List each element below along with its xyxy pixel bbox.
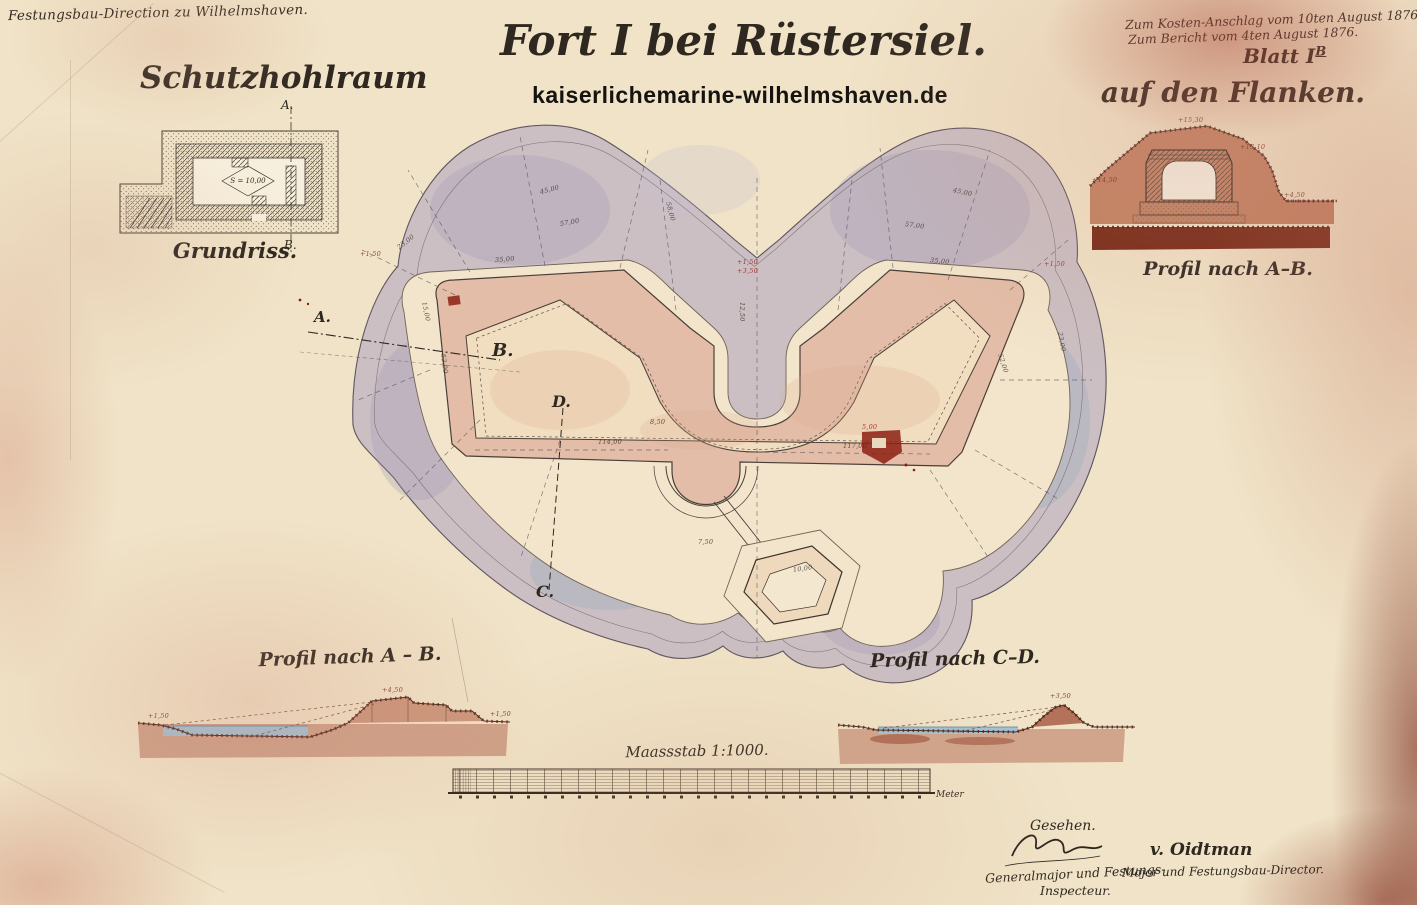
signature-seen: Gesehen. [1030,818,1096,834]
elevation-mark: 117,00 [843,442,867,450]
profile-cd-drawing [838,705,1135,764]
signature-left-role-2: Inspecteur. [1040,883,1111,898]
scale-caption: Maassstab 1:1000. [592,740,802,762]
flank-profile-drawing [1090,126,1340,250]
sheet-number-suffix: B [1315,44,1326,59]
drawing-layer [0,0,1417,905]
elevation-mark: 35,00 [495,255,515,264]
elevation-mark: 8,50 [650,418,665,426]
elevation-mark: 12,50 [738,302,746,322]
detail-marker-a: A. [281,98,293,112]
elevation-mark: +13,10 [1240,143,1265,151]
rampart-mound [348,697,484,723]
signature-stroke [1005,835,1102,866]
flank-profile-caption: Profil nach A–B. [1108,258,1348,280]
elevation-mark: +4,50 [1284,191,1305,199]
elevation-mark: +14,50 [1092,176,1117,184]
detail-plan-caption: Grundriss. [150,238,320,263]
profile-ab-drawing [138,697,510,758]
flank-profile-title: auf den Flanken. [1098,76,1368,109]
elevation-mark: +3,50 [1050,692,1071,700]
watermark-text: kaiserlichemarine-wilhelmshaven.de [500,82,980,109]
plan-marker-c: C. [536,582,554,601]
bunker-foundation [1140,202,1238,215]
elevation-mark: +1,50 [148,712,169,720]
detail-plan-title: Schutzhohlraum [140,60,400,96]
elevation-mark: 5,00 [862,423,877,431]
elevation-mark: +15,30 [1178,116,1203,124]
signature-right-name: v. Oidtman [1150,840,1252,860]
elevation-mark: +1,50 [490,710,511,718]
fort-plan-drawing [299,125,1106,702]
elevation-mark: +1,50 [360,250,381,258]
sheet-number-label: Blatt I [1243,44,1315,68]
scale-unit-label: Meter [936,790,964,800]
elevation-mark: +1,50 [737,258,758,266]
earth-underground [838,729,1125,764]
bunker-vault [1162,161,1216,200]
sheet-title: Fort I bei Rüstersiel. [500,16,980,65]
scale-bar [448,769,935,799]
elevation-mark: +1,50 [1044,260,1065,268]
elevation-mark: 114,00 [598,438,622,446]
elevation-mark: +3,50 [737,267,758,275]
plan-marker-a: A. [314,308,331,326]
sheet-number: Blatt IB [1243,44,1326,68]
plan-marker-d: D. [552,392,571,411]
elevation-mark: 7,50 [698,538,713,546]
plan-marker-b: B. [492,340,513,361]
room-area-label: S = 10,00 [218,177,278,185]
scanned-sheet: Festungsbau-Direction zu Wilhelmshaven. … [0,0,1417,905]
earth-stratum [1092,227,1330,250]
elevation-mark: +4,50 [382,686,403,694]
